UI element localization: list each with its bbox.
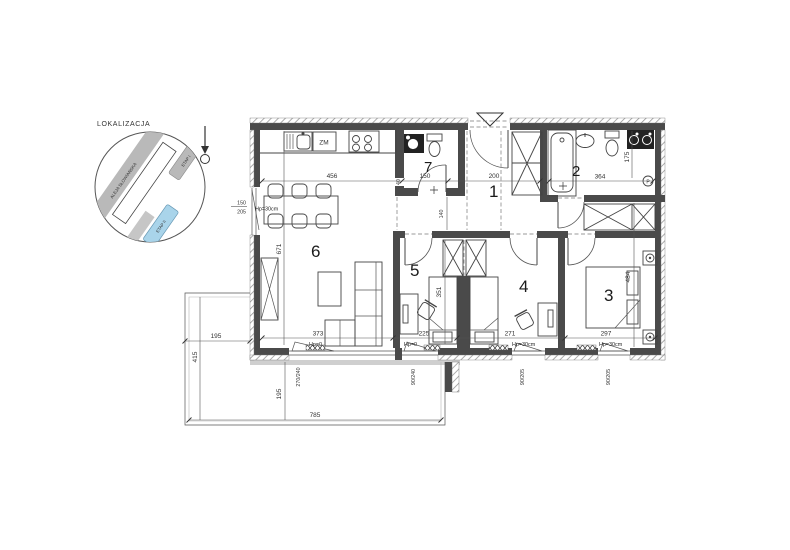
hall-entry-wardrobe bbox=[512, 132, 542, 195]
kitchen-sink bbox=[284, 132, 312, 151]
north-arrow-icon bbox=[201, 126, 210, 164]
dim-351: 351 bbox=[436, 286, 443, 297]
room-label-1: 1 bbox=[489, 182, 498, 201]
chair bbox=[268, 214, 283, 228]
terrace bbox=[185, 293, 460, 425]
dim-175: 175 bbox=[624, 151, 631, 162]
radiator-room3 bbox=[577, 345, 596, 350]
washer-dryer bbox=[627, 130, 654, 149]
panel-label: P bbox=[646, 179, 650, 185]
room3-door-swing bbox=[568, 238, 595, 265]
room-label-6: 6 bbox=[311, 242, 320, 261]
stove bbox=[349, 131, 379, 152]
radiator-room5 bbox=[424, 345, 440, 350]
hp-room3: Hp=30cm bbox=[599, 342, 623, 348]
door-threshold-icon bbox=[559, 182, 567, 190]
room-label-3: 3 bbox=[604, 286, 613, 305]
coffee-table bbox=[318, 272, 341, 306]
dim-225: 225 bbox=[419, 331, 430, 338]
win-size-room5: 90/240 bbox=[411, 369, 417, 385]
floor-plan-canvas: LOKALIZACJA ALEJA SŁOWIAŃSKA ETAP I ETAP… bbox=[0, 0, 790, 550]
room4-wardrobe bbox=[466, 240, 486, 276]
room3-nightstand bbox=[643, 251, 657, 265]
room5-bed bbox=[429, 277, 457, 344]
dim-271: 271 bbox=[505, 331, 516, 338]
dim-364: 364 bbox=[595, 174, 606, 181]
dim-297: 297 bbox=[601, 331, 612, 338]
room5-desk bbox=[400, 294, 418, 334]
entrance bbox=[470, 113, 508, 168]
win-size-living: 270/240 bbox=[296, 367, 302, 386]
room4-door-swing bbox=[510, 238, 537, 265]
hp-room5: Hp=0 bbox=[404, 342, 417, 348]
win-size-room3: 90/205 bbox=[606, 369, 612, 385]
entrance-marker-icon bbox=[477, 113, 503, 126]
terrace-slab-edge bbox=[250, 360, 460, 365]
hp-kitchen: Hp=30cm bbox=[255, 207, 279, 213]
bath-toilet bbox=[605, 131, 619, 156]
room5-wardrobe bbox=[443, 240, 463, 276]
win-size-room4: 90/205 bbox=[520, 369, 526, 385]
kitchen-window-size: 150 205 bbox=[231, 201, 247, 216]
dim-671: 671 bbox=[276, 243, 283, 254]
room4-chair bbox=[515, 310, 535, 331]
location-inset: LOKALIZACJA ALEJA SŁOWIAŃSKA ETAP I ETAP… bbox=[69, 101, 227, 284]
room4-bed bbox=[470, 277, 498, 344]
wc-washbasin bbox=[404, 134, 424, 153]
wc-toilet bbox=[427, 134, 442, 157]
chair bbox=[316, 214, 331, 228]
dishwasher-label: ZM bbox=[319, 140, 328, 147]
dim-140: 140 bbox=[439, 210, 445, 219]
hall-big-wardrobe bbox=[584, 204, 655, 230]
dim-150: 150 bbox=[420, 173, 431, 180]
room-label-5: 5 bbox=[410, 261, 419, 280]
entrance-door-swing bbox=[470, 130, 508, 168]
tv-cabinet bbox=[261, 258, 278, 320]
dim-win-205: 205 bbox=[237, 210, 246, 216]
inset-title: LOKALIZACJA bbox=[97, 121, 150, 128]
radiator-room4 bbox=[489, 345, 508, 350]
dim-456: 456 bbox=[327, 173, 338, 180]
living-balcony-door bbox=[289, 342, 395, 355]
bath-washbasin bbox=[576, 133, 594, 148]
room4-furniture bbox=[470, 238, 557, 344]
dim-200: 200 bbox=[489, 173, 500, 180]
terrace-outline bbox=[185, 293, 445, 425]
sofa bbox=[325, 262, 382, 346]
dim-40: 40 bbox=[396, 179, 402, 185]
chair bbox=[292, 214, 307, 228]
kitchen-fixtures: ZM bbox=[260, 130, 396, 153]
room5-chair bbox=[416, 300, 436, 321]
room3-nightstand bbox=[643, 330, 657, 344]
dim-415: 415 bbox=[192, 351, 199, 362]
dim-484: 484 bbox=[625, 271, 632, 282]
room4-desk bbox=[538, 303, 557, 336]
dim-195-terrace-d: 195 bbox=[276, 388, 283, 399]
bathroom-door-swing bbox=[558, 202, 584, 228]
hp-room4: Hp=30cm bbox=[512, 342, 536, 348]
room-label-2: 2 bbox=[572, 163, 580, 180]
inset-building-gray bbox=[115, 255, 139, 282]
terrace-stub-wall bbox=[445, 362, 459, 392]
hp-living: Hp=0 bbox=[309, 342, 322, 348]
room-label-4: 4 bbox=[519, 277, 528, 296]
room5-furniture bbox=[400, 238, 457, 344]
dim-785: 785 bbox=[310, 412, 321, 419]
dim-195-terrace-w: 195 bbox=[211, 333, 222, 340]
dim-win-150: 150 bbox=[237, 201, 246, 207]
dim-373: 373 bbox=[313, 331, 324, 338]
door-threshold-icon bbox=[430, 186, 438, 194]
